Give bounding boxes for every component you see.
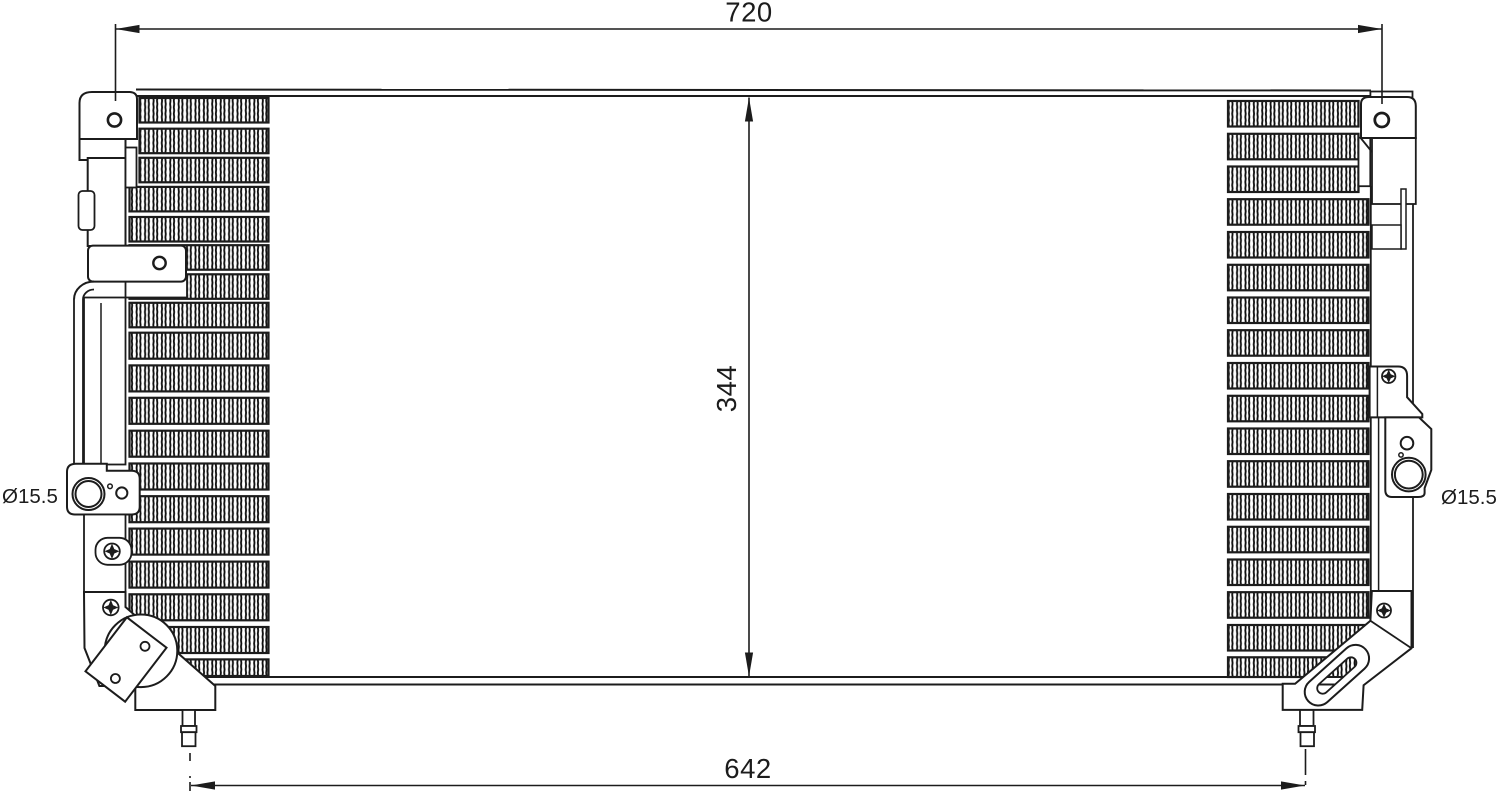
svg-text:642: 642 xyxy=(724,753,771,784)
svg-text:Ø15.5: Ø15.5 xyxy=(1441,486,1497,509)
svg-text:344: 344 xyxy=(711,365,742,412)
svg-text:720: 720 xyxy=(725,0,772,28)
svg-text:Ø15.5: Ø15.5 xyxy=(2,485,58,508)
